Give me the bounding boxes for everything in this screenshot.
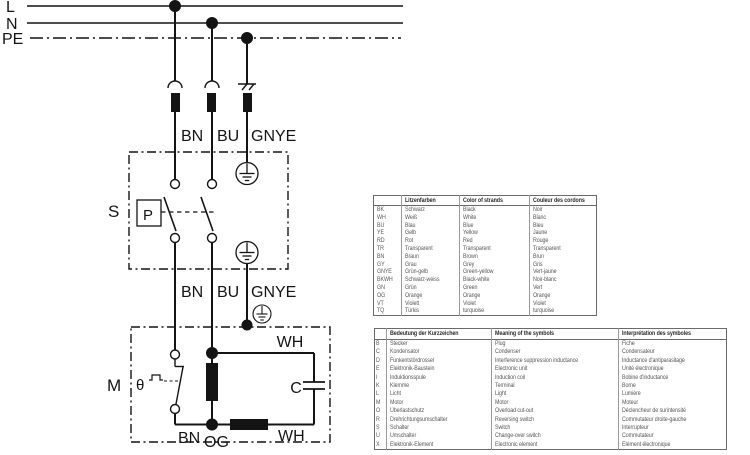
switch-section-label: S [108,202,119,221]
pressure-switch-label: P [143,207,153,224]
color_table-cell: Transparent [402,245,460,253]
color_table-cell: Braun [402,253,460,261]
color_table-cell: Blanc [530,214,597,222]
color_table-cell: Bleu [530,222,597,230]
color_table-cell: Weiß [402,214,460,222]
color_table-header-row: LitzenfarbenColor of strandsCouleur des … [374,196,597,206]
color_table-cell: Brown [460,253,530,261]
symbol_table-cell: Borne [619,382,727,390]
symbol_table-header-2: Meaning of the symbols [492,329,619,340]
thermal-contact-label: θ [136,377,144,394]
symbol_table-cell: Licht [387,390,492,398]
symbol_table-row: RDrehrichtungsumschalterReversing switch… [375,416,727,424]
color_table-row: TRTransparentTransparentTransparent [374,245,597,253]
color_table-cell: Vert-jaune [530,268,597,276]
symbol_table-cell: Fiche [619,340,727,349]
wire-label-bu-mid: BU [217,284,239,301]
plug-pins [171,93,252,112]
symbol_table-cell: Interference suppression inductance [492,357,619,365]
symbol_table-cell: Change-over switch [492,432,619,440]
symbol_table-cell: Commutateur [619,432,727,440]
symbol_table-cell: Condenser [492,348,619,356]
color_table-cell: BK [374,206,402,214]
symbol_table-cell: Funkentstördrossel [387,357,492,365]
symbol_table-row: SSchalterSwitchInterrupteur [375,424,727,432]
main-winding-branch [206,327,218,430]
symbol_table-cell: Plug [492,340,619,349]
symbol_table-cell: Umschalter [387,432,492,440]
color_table-header-0 [374,196,402,206]
symbol_table-cell: Condensateur [619,348,727,356]
earth-contact-icon [238,84,256,90]
color_table-cell: TQ [374,307,402,315]
symbol_table-row: IInduktionsspuleInduction coilBobine d'i… [375,374,727,382]
color_table-header-2: Color of strands [460,196,530,206]
color_table-cell: Blue [460,222,530,230]
thermal-pulse-icon [149,375,163,380]
color_table-cell: Grün-gelb [402,268,460,276]
color_table-cell: Noir-blanc [530,276,597,284]
contact-circle [171,180,180,189]
color_table-row: GNYEGrün-gelbGreen-yellowVert-jaune [374,268,597,276]
socket-contact-icon [168,81,182,88]
main-winding [206,363,218,401]
color_table-cell: Red [460,237,530,245]
color_table-cell: Black [460,206,530,214]
color_table-cell: Grün [402,284,460,292]
wire-label-wh-bottom: WH [278,428,305,445]
color_table-cell: Grey [460,261,530,269]
symbol_table-row: KKlemmeTerminalBorne [375,382,727,390]
symbol_table-row: EElektronik-BausteinElectronic unitUnité… [375,365,727,373]
color_table-cell: GNYE [374,268,402,276]
symbol_table-cell: Induction coil [492,374,619,382]
socket-contact-icon [205,81,219,88]
switch-blade [164,197,176,231]
symbol_table-cell: Lumière [619,390,727,398]
color_table-row: WHWeißWhiteBlanc [374,214,597,222]
wire-label-bu-top: BU [217,128,239,145]
color_table-cell: Grau [402,261,460,269]
bus-label-pe: PE [2,31,23,48]
color_table-row: BKSchwarzBlackNoir [374,206,597,214]
symbol_table-cell: Motor [387,399,492,407]
color_table-cell: Gelb [402,229,460,237]
color_table-cell: Transparent [530,245,597,253]
color_table-row: BNBraunBrownBrun [374,253,597,261]
wire-label-gnye-top: GNYE [251,128,296,145]
color_table-cell: TR [374,245,402,253]
symbol_table-row: UUmschalterChange-over switchCommutateur [375,432,727,440]
color_table-cell: OG [374,292,402,300]
color_table-row: TQTürkisturquoiseturquoise [374,307,597,315]
symbol_table-cell: Klemme [387,382,492,390]
symbol_table-row: LLichtLightLumière [375,390,727,398]
bus-label-l: L [6,0,15,16]
symbol_table-cell: Electronic unit [492,365,619,373]
symbol_table-cell: Inductance d'antiparasitage [619,357,727,365]
symbol_table-cell: Elektronik-Baustein [387,365,492,373]
color_table-cell: Vert [530,284,597,292]
color_table-cell: Black-white [460,276,530,284]
pressure-switch: P [137,200,161,226]
color_table-cell: Noir [530,206,597,214]
symbol_table-cell: Terminal [492,382,619,390]
symbol_table-row: XElektronik-ElementElectronic elementElé… [375,441,727,450]
symbol_table-header-0 [375,329,387,340]
capacitor-icon [303,382,325,389]
color_table-cell: GN [374,284,402,292]
color-table-wrapper: LitzenfarbenColor of strandsCouleur des … [373,195,597,316]
color_table-cell: Türkis [402,307,460,315]
symbol_table-cell: C [375,348,387,356]
color_table-cell: Orange [402,292,460,300]
bus-taps [170,1,253,85]
symbol_table-cell: Bobine d'inductance [619,374,727,382]
contact-circle [171,234,180,243]
wire-label-bn-top: BN [181,128,203,145]
symbol_table-row: DFunkentstördrosselInterference suppress… [375,357,727,365]
color_table-cell: Jaune [530,229,597,237]
circuit-diagram: L N PE [0,0,420,455]
symbol_table-cell: E [375,365,387,373]
symbol_table-cell: Reversing switch [492,416,619,424]
symbol_table-cell: R [375,416,387,424]
symbol_table-cell: Überlastschutz [387,407,492,415]
symbol_table-cell: I [375,374,387,382]
switch-contacts [161,180,217,328]
symbol_table-cell: Stecker [387,340,492,349]
symbol_table-header-row: Bedeutung der KurzzeichenMeaning of the … [375,329,727,340]
symbol_table-cell: Light [492,390,619,398]
color_table-cell: Violet [530,300,597,308]
color_table-cell: GY [374,261,402,269]
color_table-row: BKWHSchwarz-weissBlack-whiteNoir-blanc [374,276,597,284]
symbol_table-cell: K [375,382,387,390]
color_table-header-3: Couleur des cordons [530,196,597,206]
color_table-cell: VT [374,300,402,308]
color_table-cell: Gris [530,261,597,269]
color_table-cell: White [460,214,530,222]
symbol_table-cell: B [375,340,387,349]
wire-label-og-bottom: OG [204,434,229,451]
color_table-cell: Brun [530,253,597,261]
color_table-cell: Orange [530,292,597,300]
symbol_table-cell: Drehrichtungsumschalter [387,416,492,424]
symbol_table-cell: Interrupteur [619,424,727,432]
color_table-row: RDRotRedRouge [374,237,597,245]
color_table-row: GNGrünGreenVert [374,284,597,292]
symbol_table-cell: Elément électronique [619,441,727,450]
aux-winding [230,419,268,430]
earth-terminal-top [236,163,258,185]
color_table-cell: BN [374,253,402,261]
wiring-diagram-page: L N PE [0,0,750,455]
symbol_table-cell: U [375,432,387,440]
symbol-table-wrapper: Bedeutung der KurzzeichenMeaning of the … [374,328,727,450]
color_table-cell: Green [460,284,530,292]
symbol_table-row: OÜberlastschutzOverload cut-outDéclenche… [375,407,727,415]
wire-label-wh-top: WH [277,334,304,351]
color_table-cell: WH [374,214,402,222]
symbol_table-cell: Déclencheur de surintensité [619,407,727,415]
symbol_table-row: BSteckerPlugFiche [375,340,727,349]
symbol-table: Bedeutung der KurzzeichenMeaning of the … [374,328,727,450]
symbol_table-header-3: Interprétation des symboles [619,329,727,340]
color_table-cell: Green-yellow [460,268,530,276]
junction-dot [242,320,253,331]
symbol_table-cell: Induktionsspule [387,374,492,382]
symbol_table-cell: O [375,407,387,415]
earth-terminal-bottom [236,242,258,323]
color_table-cell: turquoise [530,307,597,315]
symbol_table-cell: Commutateur droite-gauche [619,416,727,424]
symbol_table-cell: Overload cut-out [492,407,619,415]
wire-label-bn-bottom: BN [178,430,200,447]
color_table-row: OGOrangeOrangeOrange [374,292,597,300]
contact-circle [171,350,180,359]
symbol_table-cell: Kondensator [387,348,492,356]
color-table: LitzenfarbenColor of strandsCouleur des … [373,195,597,316]
symbol_table-row: MMotorMotorMoteur [375,399,727,407]
symbol_table-cell: Motor [492,399,619,407]
color_table-row: BUBlauBlueBleu [374,222,597,230]
thermal-contact [149,327,184,425]
motor-section-label: M [107,376,121,395]
symbol_table-header-1: Bedeutung der Kurzzeichen [387,329,492,340]
switch-blade [176,367,183,404]
symbol_table-cell: L [375,390,387,398]
color_table-cell: Orange [460,292,530,300]
color_table-cell: Violett [402,300,460,308]
color_table-cell: Rouge [530,237,597,245]
color_table-cell: Schwarz [402,206,460,214]
color_table-cell: BU [374,222,402,230]
contact-circle [208,180,217,189]
symbol_table-cell: Switch [492,424,619,432]
symbol_table-cell: X [375,441,387,450]
symbol_table-cell: M [375,399,387,407]
color_table-cell: Violet [460,300,530,308]
switch-blade [201,197,213,231]
earth-symbol-icon [253,305,271,323]
capacitor-label: C [290,380,302,397]
color_table-row: YEGelbYellowJaune [374,229,597,237]
color_table-cell: RD [374,237,402,245]
wire-label-bn-mid: BN [181,284,203,301]
symbol_table-cell: S [375,424,387,432]
color_table-header-1: Litzenfarben [402,196,460,206]
contact-circle [171,405,180,414]
symbol_table-cell: Moteur [619,399,727,407]
symbol_table-cell: Schalter [387,424,492,432]
wire-label-gnye-mid: GNYE [251,284,296,301]
color_table-cell: Blau [402,222,460,230]
symbol_table-row: CKondensatorCondenserCondensateur [375,348,727,356]
contact-circle [208,234,217,243]
color_table-cell: YE [374,229,402,237]
color_table-row: VTViolettVioletViolet [374,300,597,308]
aux-winding-branch [175,353,325,430]
color_table-row: GYGrauGreyGris [374,261,597,269]
symbol_table-cell: Electronic element [492,441,619,450]
color_table-cell: Yellow [460,229,530,237]
color_table-cell: turquoise [460,307,530,315]
symbol_table-cell: Unité électronique [619,365,727,373]
symbol_table-cell: Elektronik-Element [387,441,492,450]
color_table-cell: BKWH [374,276,402,284]
color_table-cell: Rot [402,237,460,245]
color_table-cell: Schwarz-weiss [402,276,460,284]
color_table-cell: Transparent [460,245,530,253]
symbol_table-cell: D [375,357,387,365]
